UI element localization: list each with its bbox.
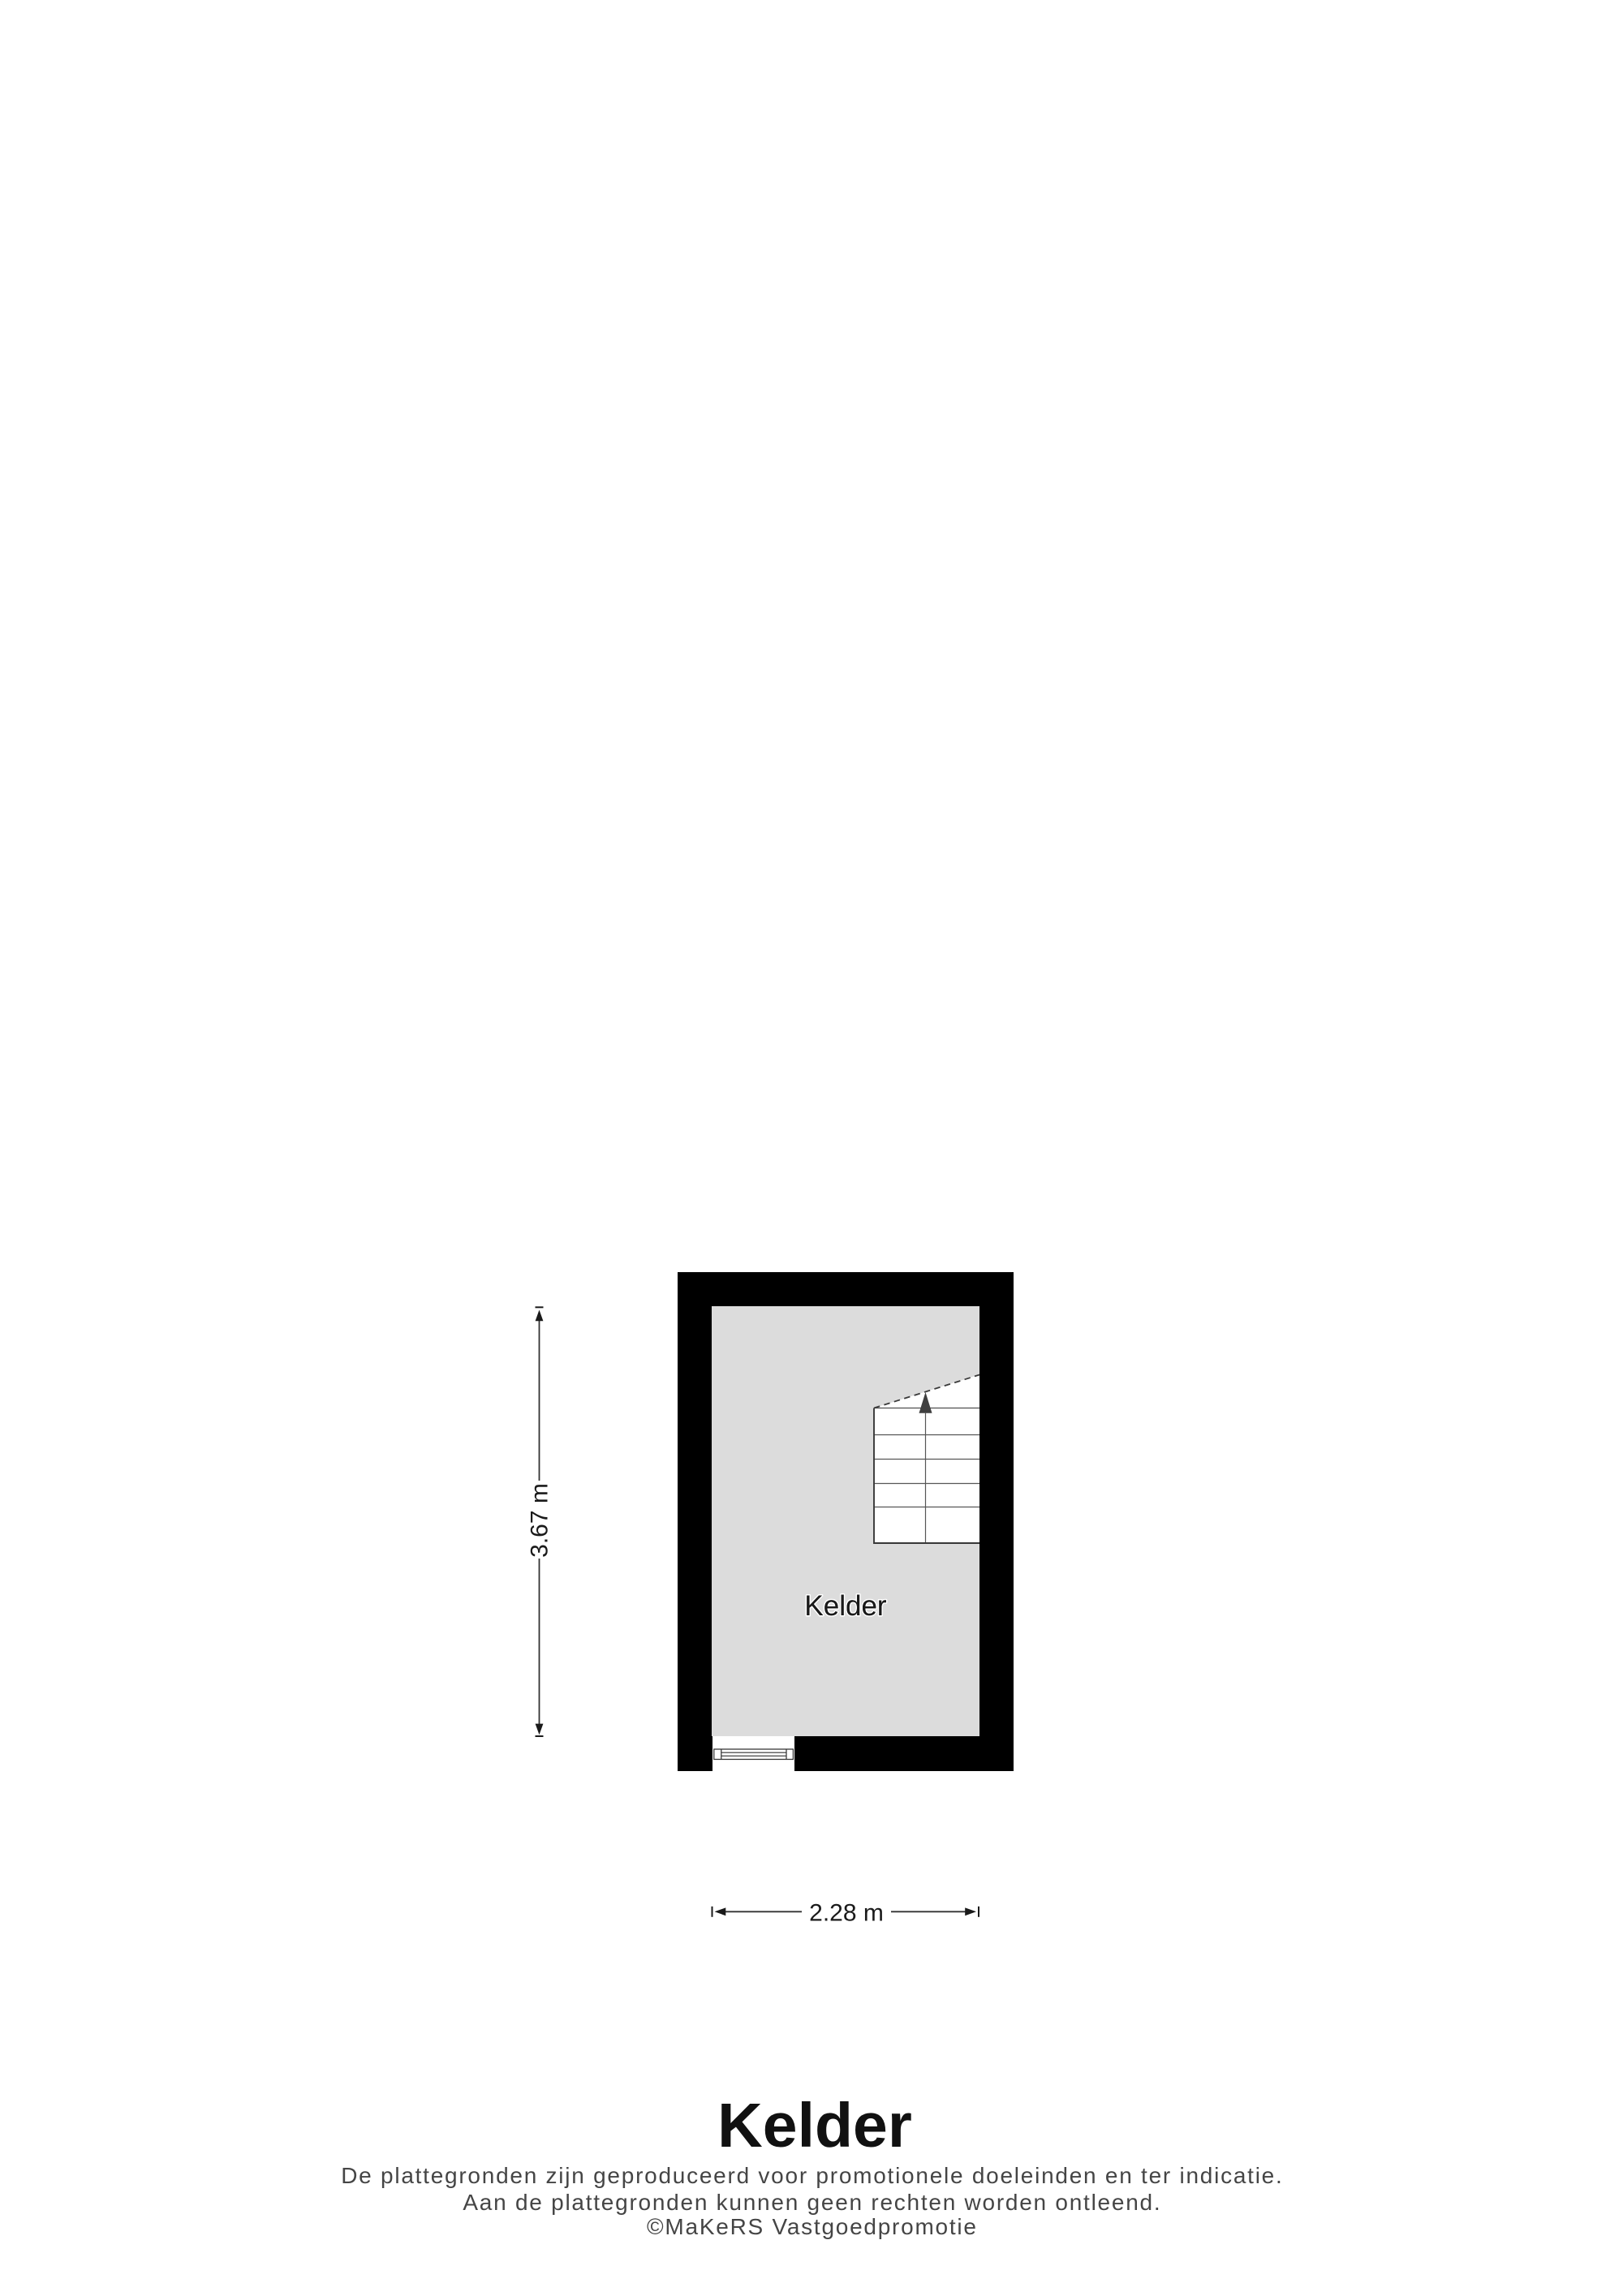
svg-text:Kelder: Kelder [804, 1590, 887, 1622]
svg-text:2.28 m: 2.28 m [809, 1900, 884, 1927]
svg-text:3.67 m: 3.67 m [527, 1483, 553, 1558]
